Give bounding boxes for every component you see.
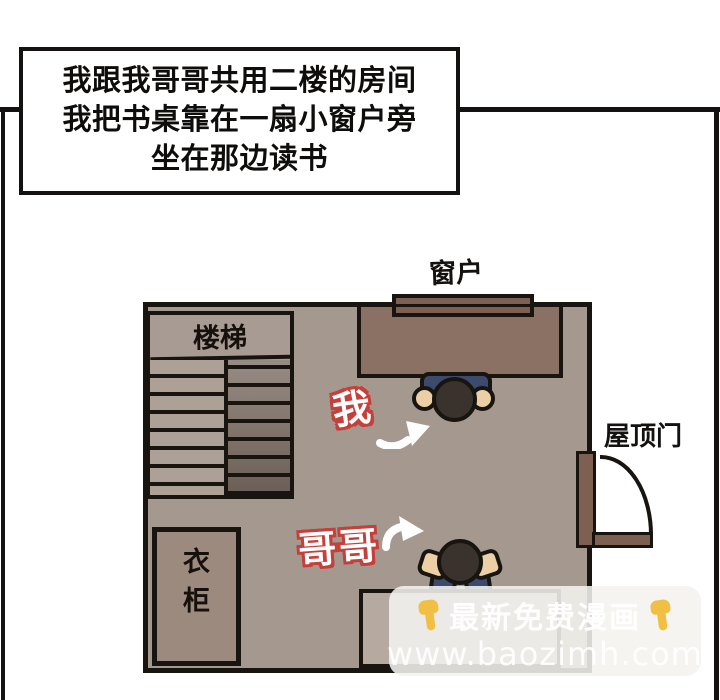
stairs: 楼梯 xyxy=(146,311,294,499)
stairs-steps xyxy=(150,360,290,495)
stairs-steps-left-column xyxy=(150,360,224,495)
caption-box: 我跟我哥哥共用二楼的房间 我把书桌靠在一扇小窗户旁 坐在那边读书 xyxy=(19,47,460,195)
window-label: 窗户 xyxy=(428,250,483,291)
me-arrow-icon xyxy=(372,413,434,449)
me-label: 我 xyxy=(328,376,373,436)
stairs-label: 楼梯 xyxy=(150,314,291,361)
wardrobe-label-char-2: 柜 xyxy=(183,587,210,617)
comic-panel: 我跟我哥哥共用二楼的房间 我把书桌靠在一扇小窗户旁 坐在那边读书 楼梯 衣 柜 … xyxy=(0,0,720,700)
watermark-text: 最新免费漫画 xyxy=(449,593,641,637)
caption-line-3: 坐在那边读书 xyxy=(23,139,456,178)
me-figure-head xyxy=(432,377,477,422)
window xyxy=(392,294,534,317)
point-down-finger-icon xyxy=(645,597,677,633)
door-swing-arc-icon xyxy=(594,450,666,545)
watermark-overlay: 最新免费漫画 www.baozimh.com xyxy=(389,586,701,676)
panel-border-left xyxy=(1,107,5,700)
caption-line-2: 我把书桌靠在一扇小窗户旁 xyxy=(23,100,456,139)
window-divider xyxy=(396,304,530,307)
point-down-finger-icon xyxy=(413,597,445,633)
stairs-steps-right-column xyxy=(224,360,290,495)
brother-label: 哥哥 xyxy=(296,514,382,575)
caption-line-1: 我跟我哥哥共用二楼的房间 xyxy=(23,61,456,100)
panel-border-right xyxy=(714,107,719,700)
watermark-url: www.baozimh.com xyxy=(387,638,703,670)
roof-door-label: 屋顶门 xyxy=(604,416,682,453)
roof-door-leaf xyxy=(592,532,653,548)
wardrobe: 衣 柜 xyxy=(152,527,241,666)
watermark-line1: 最新免费漫画 xyxy=(415,593,675,637)
wardrobe-label-char-1: 衣 xyxy=(183,548,210,578)
brother-figure-head xyxy=(437,539,483,585)
brother-arrow-icon xyxy=(379,513,429,553)
